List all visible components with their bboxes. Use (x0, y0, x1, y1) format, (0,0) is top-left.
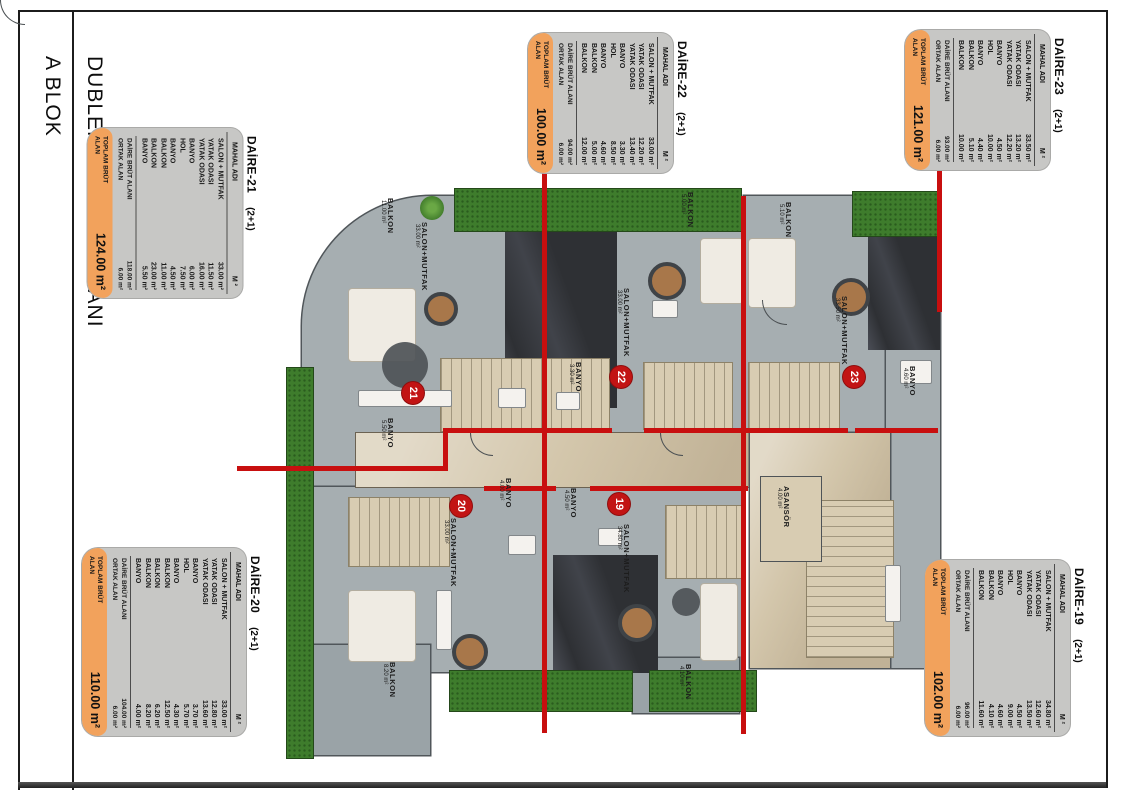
col-room-header: MAHAL ADI (231, 142, 238, 181)
table-title: DAİRE-22(2+1) (673, 33, 689, 173)
unit-table-daire-23: DAİRE-23(2+1) MAHAL ADIM ² SALON + MUTFA… (905, 30, 1066, 170)
room-name: BANYO (975, 40, 985, 65)
room-area: 8.20 m² (143, 704, 153, 728)
table-title: DAİRE-19(2+1) (1070, 560, 1086, 736)
room-name: YATAK ODASI (209, 558, 219, 605)
room-area: 12.20 m² (1004, 134, 1014, 162)
kitchen-counter-unit19 (885, 565, 901, 622)
red-leader-daire23 (937, 170, 942, 312)
room-area: 33.50 m² (1023, 134, 1033, 162)
stair-unit20 (348, 497, 450, 567)
room-name: BALKON (966, 40, 976, 70)
red-wall-corridor-top-2 (644, 428, 848, 433)
room-area: 7.50 m² (177, 266, 187, 290)
room-name: BANYO (171, 558, 181, 583)
table-row: BALKON5.00 m² (589, 37, 599, 169)
unit-table-daire-19: DAİRE-19(2+1) MAHAL ADIM ² SALON + MUTFA… (925, 560, 1086, 736)
room-label-salon-unit19: SALON+MUTFAK34.80 m² (616, 524, 631, 593)
red-wall-corridor-bottom-2 (590, 486, 748, 491)
room-label-balkon-unit20: BALKON8.20 m² (382, 662, 397, 698)
table-unit19 (618, 604, 656, 642)
core-unit23-kitchen (868, 230, 940, 350)
room-name: BALKON (143, 558, 153, 588)
table-row: HOL7.50 m² (177, 132, 187, 294)
total-area-value: 110.00 m² (88, 672, 102, 728)
table-row: YATAK ODASI13.60 m² (200, 552, 210, 732)
col-room-header: MAHAL ADI (1058, 574, 1065, 613)
table-row: YATAK ODASI13.20 m² (1013, 34, 1023, 166)
room-name: SALON + MUTFAK (1043, 570, 1053, 632)
room-area: 5.50 m² (139, 266, 149, 290)
room-area: 11.60 m² (976, 700, 986, 728)
room-name: HOL (1005, 570, 1015, 585)
total-row: TOPLAM BRÜT ALAN110.00 m² (82, 548, 107, 736)
room-area: 13.50 m² (1024, 700, 1034, 728)
table-row: BANYO4.30 m² (171, 552, 181, 732)
room-label-balkon-unit19: BALKON4.10 m² (678, 664, 693, 700)
room-area: 33.00 m² (219, 700, 229, 728)
room-area: 23.00 m² (149, 262, 159, 290)
col-area-header: M ² (661, 151, 668, 161)
room-area: 8.50 m² (608, 141, 618, 165)
table-title: DAİRE-21(2+1) (243, 128, 259, 298)
room-area: 4.50 m² (994, 138, 1004, 162)
unit-badge-21: 21 (402, 382, 424, 404)
room-name: YATAK ODASI (1033, 570, 1043, 617)
table-row: YATAK ODASI12.80 m² (209, 552, 219, 732)
col-room-header: MAHAL ADI (661, 47, 668, 86)
room-area: 10.00 m² (956, 134, 966, 162)
col-area-header: M ² (1038, 148, 1045, 158)
room-area: 10.00 m² (985, 134, 995, 162)
room-area: 13.40 m² (627, 137, 637, 165)
red-wall-vertical-left (542, 173, 547, 733)
room-label-salon-unit20: SALON+MUTFAK33.00 m² (443, 518, 458, 587)
table-title: DAİRE-20(2+1) (246, 548, 262, 736)
table-row: BANYO3.70 m² (190, 552, 200, 732)
room-name: BANYO (598, 43, 608, 68)
unit-table-daire-22: DAİRE-22(2+1) MAHAL ADIM ² SALON + MUTFA… (528, 33, 689, 173)
total-area-value: 102.00 m² (931, 671, 945, 728)
room-area: 4.30 m² (171, 704, 181, 728)
room-name: BALKON (162, 558, 172, 588)
table-unit20 (452, 634, 488, 670)
table-row: BANYO4.60 m² (995, 564, 1005, 732)
room-label-banyo-unit22: BANYO3.30 m² (568, 362, 583, 392)
table-row: BALKON12.00 m² (579, 37, 589, 169)
hedge-top-right (853, 192, 940, 236)
table-row: YATAK ODASI11.50 m² (206, 132, 216, 294)
room-name: BANYO (190, 558, 200, 583)
room-label-balkon-unit21: BALKON11.00 m² (380, 198, 395, 234)
room-area: 4.00 m² (133, 704, 143, 728)
room-name: HOL (985, 40, 995, 55)
table-row: YATAK ODASI16.00 m² (196, 132, 206, 294)
room-area: 34.80 m² (1043, 700, 1053, 728)
room-name: BALKON (149, 138, 159, 168)
table-row: BALKON11.60 m² (976, 564, 986, 732)
room-name: YATAK ODASI (1013, 40, 1023, 87)
room-name: BALKON (986, 570, 996, 600)
brut-row: DAİRE BRÜT ALANI94.00 m² (565, 33, 574, 173)
table-row: BALKON23.00 m² (149, 132, 159, 294)
room-name: SALON + MUTFAK (215, 138, 225, 200)
table-unit21 (424, 292, 458, 326)
room-name: YATAK ODASI (627, 43, 637, 90)
red-wall-jog (443, 428, 448, 471)
col-room-header: MAHAL ADI (1038, 44, 1045, 83)
room-area: 33.00 m² (215, 262, 225, 290)
room-name: BALKON (976, 570, 986, 600)
col-room-header: MAHAL ADI (234, 562, 241, 601)
room-name: YATAK ODASI (196, 138, 206, 185)
room-name: HOL (181, 558, 191, 573)
table-row: YATAK ODASI12.20 m² (636, 37, 646, 169)
room-name: BANYO (139, 138, 149, 163)
table-row: YATAK ODASI12.20 m² (1004, 34, 1014, 166)
col-area-header: M ² (234, 714, 241, 724)
table-row: HOL5.70 m² (181, 552, 191, 732)
col-area-header: M ² (231, 276, 238, 286)
table-row: SALON + MUTFAK33.00 m² (646, 37, 656, 169)
rug-unit21 (382, 342, 428, 388)
table-row: BANYO4.60 m² (598, 37, 608, 169)
floor-plan-sheet: { "sheet": { "block_title": "A BLOK", "p… (0, 0, 1132, 800)
table-row: BANYO4.50 m² (994, 34, 1004, 166)
room-name: BANYO (168, 138, 178, 163)
total-row: TOPLAM BRÜT ALAN100.00 m² (528, 33, 553, 173)
room-name: SALON + MUTFAK (219, 558, 229, 620)
table-row: BANYO4.00 m² (133, 552, 143, 732)
table-row: BALKON8.20 m² (143, 552, 153, 732)
room-label-banyo-unit20: BANYO4.00 m² (498, 478, 513, 508)
total-row: TOPLAM BRÜT ALAN102.00 m² (925, 560, 950, 736)
table-row: BANYO4.40 m² (975, 34, 985, 166)
table-row: BANYO4.50 m² (168, 132, 178, 294)
room-name: SALON + MUTFAK (646, 43, 656, 105)
room-label-banyo-unit19: BANYO4.50 m² (563, 488, 578, 518)
room-area: 12.80 m² (209, 700, 219, 728)
room-area: 5.10 m² (966, 138, 976, 162)
room-area: 4.40 m² (975, 138, 985, 162)
room-area: 33.00 m² (646, 137, 656, 165)
room-area: 5.00 m² (589, 141, 599, 165)
room-label-banyo-unit23: BANYO4.60 m² (902, 366, 917, 396)
room-area: 13.60 m² (200, 700, 210, 728)
room-area: 12.60 m² (1033, 700, 1043, 728)
red-wall-vertical-right (741, 196, 746, 734)
room-area: 4.10 m² (986, 704, 996, 728)
unit-badge-23: 23 (843, 366, 865, 388)
room-area: 12.00 m² (579, 137, 589, 165)
room-label-salon-unit21: SALON+MUTFAK33.00 m² (414, 222, 429, 291)
red-wall-corridor-bottom-1 (484, 486, 556, 491)
room-area: 6.20 m² (152, 704, 162, 728)
elevator-shaft (760, 476, 822, 562)
ortak-row: ORTAK ALAN6.00 m² (110, 548, 119, 736)
brut-row: DAİRE BRÜT ALANI118.00 m² (125, 128, 134, 298)
room-area: 16.00 m² (196, 262, 206, 290)
room-name: BALKON (158, 138, 168, 168)
ortak-row: ORTAK ALAN6.00 m² (953, 560, 962, 736)
table-row: YATAK ODASI12.60 m² (1033, 564, 1043, 732)
room-name: BANYO (1014, 570, 1024, 595)
table-row: BALKON5.10 m² (966, 34, 976, 166)
table-row: HOL10.00 m² (985, 34, 995, 166)
room-name: BANYO (995, 570, 1005, 595)
table-row: HOL9.00 m² (1005, 564, 1015, 732)
room-area: 3.30 m² (617, 141, 627, 165)
room-area: 9.00 m² (1005, 704, 1015, 728)
table-title: DAİRE-23(2+1) (1050, 30, 1066, 170)
sofa-unit19 (700, 583, 738, 661)
ortak-row: ORTAK ALAN6.00 m² (556, 33, 565, 173)
room-name: YATAK ODASI (1024, 570, 1034, 617)
hedge-top (455, 189, 741, 231)
room-name: BANYO (994, 40, 1004, 65)
room-name: HOL (608, 43, 618, 58)
table-row: SALON + MUTFAK33.50 m² (1023, 34, 1033, 166)
room-name: BANYO (187, 138, 197, 163)
room-label-balkon-unit22: BALKON5.00 m² (680, 192, 695, 228)
room-area: 11.50 m² (206, 262, 216, 290)
ortak-row: ORTAK ALAN6.00 m² (116, 128, 125, 298)
ortak-row: ORTAK ALAN6.00 m² (933, 30, 942, 170)
sofa-unit23 (748, 238, 796, 308)
total-area-value: 121.00 m² (911, 105, 925, 162)
table-row: BALKON10.00 m² (956, 34, 966, 166)
unit-badge-19: 19 (608, 493, 630, 515)
bath-fixture (498, 388, 526, 408)
room-label-asansor: ASANSÖR4.00 m² (776, 486, 791, 528)
room-label-salon-unit23: SALON+MUTFAK33.50 m² (834, 296, 849, 365)
table-row: BANYO3.30 m² (617, 37, 627, 169)
bath-fixture (652, 300, 678, 318)
red-leader-daire21 (237, 466, 448, 471)
room-name: YATAK ODASI (1004, 40, 1014, 87)
room-name: HOL (177, 138, 187, 153)
total-area-value: 100.00 m² (534, 108, 548, 165)
total-row: TOPLAM BRÜT ALAN121.00 m² (905, 30, 930, 170)
brut-row: DAİRE BRÜT ALANI96.00 m² (962, 560, 971, 736)
table-row: BANYO6.00 m² (187, 132, 197, 294)
table-row: BANYO5.50 m² (139, 132, 149, 294)
room-label-balkon-unit23: BALKON5.10 m² (778, 202, 793, 238)
room-label-salon-unit22: SALON+MUTFAK33.00 m² (616, 288, 631, 357)
room-area: 11.00 m² (158, 262, 168, 290)
room-name: BALKON (579, 43, 589, 73)
hedge-bottom-left (450, 671, 632, 711)
room-area: 12.20 m² (636, 137, 646, 165)
table-row: SALON + MUTFAK33.00 m² (215, 132, 225, 294)
brut-row: DAİRE BRÜT ALANI93.00 m² (942, 30, 951, 170)
table-row: BALKON11.00 m² (158, 132, 168, 294)
unit-table-daire-20: DAİRE-20(2+1) MAHAL ADIM ² SALON + MUTFA… (82, 548, 262, 736)
stair-unit22 (643, 362, 733, 430)
table-row: SALON + MUTFAK33.00 m² (219, 552, 229, 732)
room-area: 3.70 m² (190, 704, 200, 728)
table-row: BALKON4.10 m² (986, 564, 996, 732)
table-unit22 (648, 262, 686, 300)
door-arc (0, 0, 25, 25)
table-row: BALKON12.50 m² (162, 552, 172, 732)
table-row: HOL8.50 m² (608, 37, 618, 169)
table-row: YATAK ODASI13.50 m² (1024, 564, 1034, 732)
table-row: SALON + MUTFAK34.80 m² (1043, 564, 1053, 732)
room-name: BANYO (133, 558, 143, 583)
rug-unit19 (672, 588, 700, 616)
room-name: BALKON (589, 43, 599, 73)
room-name: YATAK ODASI (206, 138, 216, 185)
room-name: YATAK ODASI (636, 43, 646, 90)
table-row: BANYO4.50 m² (1014, 564, 1024, 732)
unit-badge-20: 20 (450, 495, 472, 517)
stair-unit19 (665, 505, 743, 579)
room-name: YATAK ODASI (200, 558, 210, 605)
unit-badge-22: 22 (610, 366, 632, 388)
bath-fixture (508, 535, 536, 555)
room-area: 4.50 m² (168, 266, 178, 290)
room-area: 13.20 m² (1013, 134, 1023, 162)
red-wall-corridor-top-3 (855, 428, 938, 433)
total-area-value: 124.00 m² (94, 233, 108, 290)
room-area: 12.50 m² (162, 700, 172, 728)
room-label-banyo-unit21: BANYO5.50 m² (380, 418, 395, 448)
kitchen-counter-unit20 (436, 590, 452, 650)
room-area: 6.00 m² (187, 266, 197, 290)
room-area: 5.70 m² (181, 704, 191, 728)
bath-fixture (556, 392, 580, 410)
room-name: BALKON (152, 558, 162, 588)
stair-unit23 (748, 362, 840, 430)
red-wall-corridor-top-1 (444, 428, 612, 433)
col-area-header: M ² (1058, 714, 1065, 724)
room-name: BANYO (617, 43, 627, 68)
brut-row: DAİRE BRÜT ALANI104.00 m² (119, 548, 128, 736)
room-area: 4.50 m² (1014, 704, 1024, 728)
sofa-unit22 (700, 238, 744, 304)
sofa-unit20 (348, 590, 416, 662)
plant-top-left (420, 196, 444, 220)
table-row: BALKON6.20 m² (152, 552, 162, 732)
table-row: YATAK ODASI13.40 m² (627, 37, 637, 169)
room-name: SALON + MUTFAK (1023, 40, 1033, 102)
total-row: TOPLAM BRÜT ALAN124.00 m² (88, 128, 113, 298)
room-area: 4.60 m² (995, 704, 1005, 728)
grass-left (287, 368, 313, 758)
room-name: BALKON (956, 40, 966, 70)
room-area: 4.60 m² (598, 141, 608, 165)
unit-table-daire-21: DAİRE-21(2+1) MAHAL ADIM ² SALON + MUTFA… (88, 128, 259, 298)
